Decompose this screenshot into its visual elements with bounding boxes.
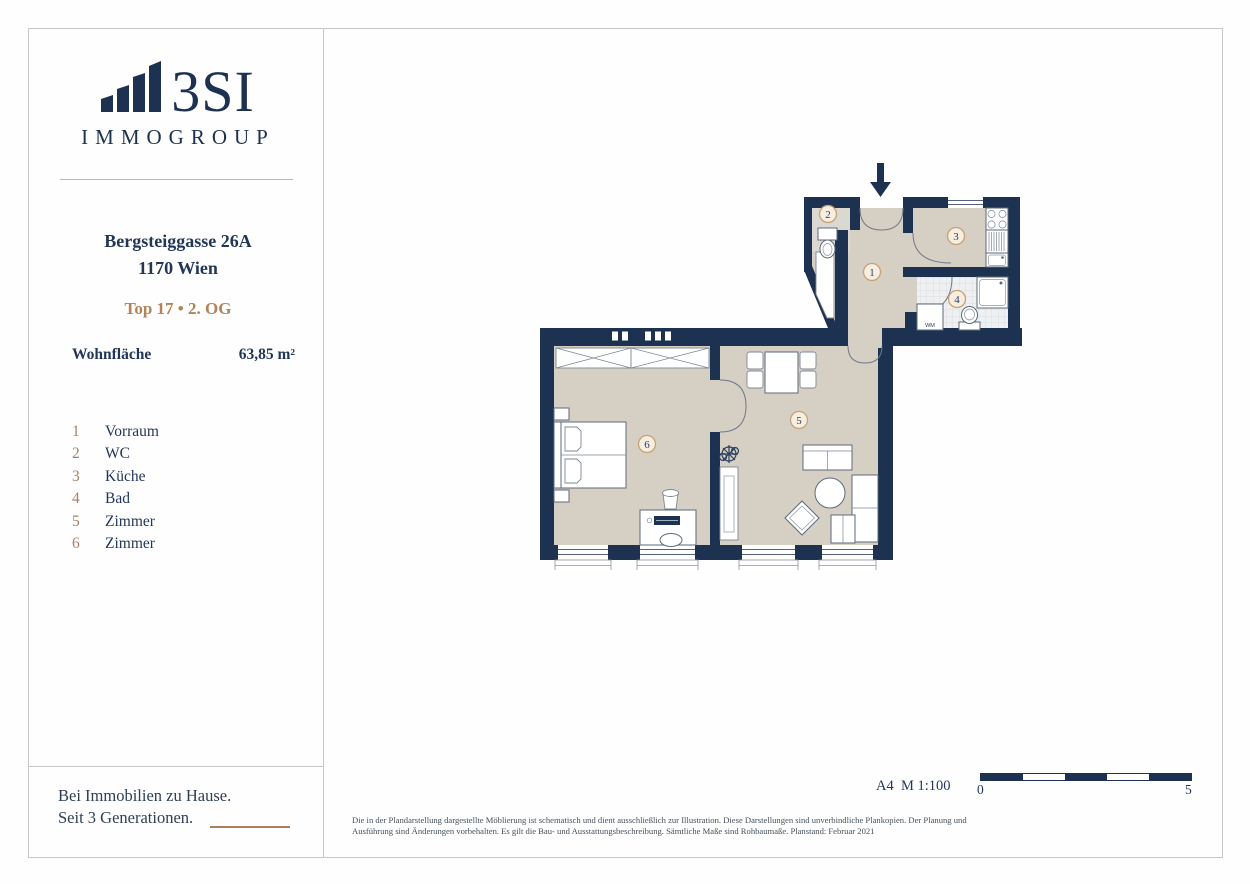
bed-icon (554, 408, 626, 502)
room-label-4: 4 (949, 291, 966, 308)
floorplan-page: 3SI IMMOGROUP Bergsteiggasse 26A 1170 Wi… (0, 0, 1250, 884)
nightstand-icon (554, 490, 569, 502)
scale-bar (980, 773, 1192, 781)
tagline: Bei Immobilien zu Hause. Seit 3 Generati… (58, 785, 231, 829)
legend-num: 3 (72, 466, 105, 488)
legend-num: 1 (72, 421, 105, 443)
legend-num: 5 (72, 511, 105, 533)
disclaimer-text: Die in der Plandarstellung dargestellte … (352, 815, 986, 837)
address: Bergsteiggasse 26A 1170 Wien (40, 228, 316, 282)
logo-text: 3SI (171, 63, 255, 121)
legend-label: Bad (105, 488, 130, 510)
chair-icon (747, 371, 763, 388)
room-label-5: 5 (791, 412, 808, 429)
room-label-6: 6 (639, 436, 656, 453)
nightstand-icon (554, 408, 569, 420)
svg-text:6: 6 (644, 439, 650, 451)
counter-drainer-icon (986, 230, 1008, 253)
unit-label: Top 17 • 2. OG (40, 299, 316, 319)
logo-bars-icon (101, 60, 165, 112)
window (637, 545, 698, 570)
dining-table-icon (747, 352, 816, 393)
scale-end: 5 (1185, 782, 1192, 798)
floorplan-drawing: WM (530, 160, 1030, 570)
area-row: Wohnfläche 63,85 m² (72, 346, 295, 364)
scale-label: A4 M 1:100 (876, 778, 951, 795)
logo-rule (60, 179, 293, 180)
address-line1: Bergsteiggasse 26A (40, 228, 316, 255)
legend-num: 2 (72, 443, 105, 465)
legend-item: 1 Vorraum (72, 421, 159, 443)
stove-icon (986, 208, 1008, 230)
pillow (565, 459, 581, 483)
washing-machine-icon: WM (917, 304, 943, 330)
legend-item: 4 Bad (72, 488, 159, 510)
room-legend: 1 Vorraum 2 WC 3 Küche 4 Bad 5 Zimmer 6 … (72, 421, 159, 555)
kitchen-sink-icon (986, 253, 1008, 267)
kitchen-window (948, 197, 983, 208)
room-label-1: 1 (864, 264, 881, 281)
desk-chair-icon (660, 534, 682, 547)
pillow (565, 427, 581, 451)
svg-text:3: 3 (953, 231, 959, 243)
logo: 3SI IMMOGROUP (40, 60, 316, 150)
area-label: Wohnfläche (72, 346, 151, 364)
legend-label: Zimmer (105, 533, 155, 555)
logo-subtext: IMMOGROUP (40, 125, 316, 150)
sidebar-divider (323, 28, 324, 857)
legend-label: Zimmer (105, 511, 155, 533)
svg-text:5: 5 (796, 415, 802, 427)
address-line2: 1170 Wien (40, 255, 316, 282)
sofa-icon (803, 445, 852, 470)
window (739, 545, 798, 570)
wardrobe-icon (556, 348, 709, 368)
legend-item: 6 Zimmer (72, 533, 159, 555)
legend-item: 3 Küche (72, 466, 159, 488)
coffee-table-icon (815, 478, 845, 508)
bathtub-icon (977, 277, 1008, 308)
legend-label: Küche (105, 466, 145, 488)
legend-item: 2 WC (72, 443, 159, 465)
svg-text:2: 2 (825, 209, 831, 221)
legend-num: 4 (72, 488, 105, 510)
duct-shaft (816, 252, 834, 318)
svg-text:1: 1 (869, 267, 875, 279)
legend-num: 6 (72, 533, 105, 555)
chair-icon (747, 352, 763, 369)
legend-label: WC (105, 443, 130, 465)
chair-icon (800, 371, 816, 388)
window (819, 545, 876, 570)
shelf-icon (720, 467, 738, 540)
scale-start: 0 (977, 782, 984, 798)
tagline-line2: Seit 3 Generationen. (58, 807, 231, 829)
chair-icon (800, 352, 816, 369)
tagline-line1: Bei Immobilien zu Hause. (58, 785, 231, 807)
legend-label: Vorraum (105, 421, 159, 443)
legend-item: 5 Zimmer (72, 511, 159, 533)
svg-text:4: 4 (954, 294, 960, 306)
tagline-accent-rule (210, 826, 290, 828)
window (555, 545, 611, 570)
tagline-divider (29, 766, 323, 767)
area-value: 63,85 m² (239, 346, 295, 364)
room-label-3: 3 (948, 228, 965, 245)
room-label-2: 2 (820, 206, 837, 223)
svg-text:WM: WM (925, 323, 935, 329)
